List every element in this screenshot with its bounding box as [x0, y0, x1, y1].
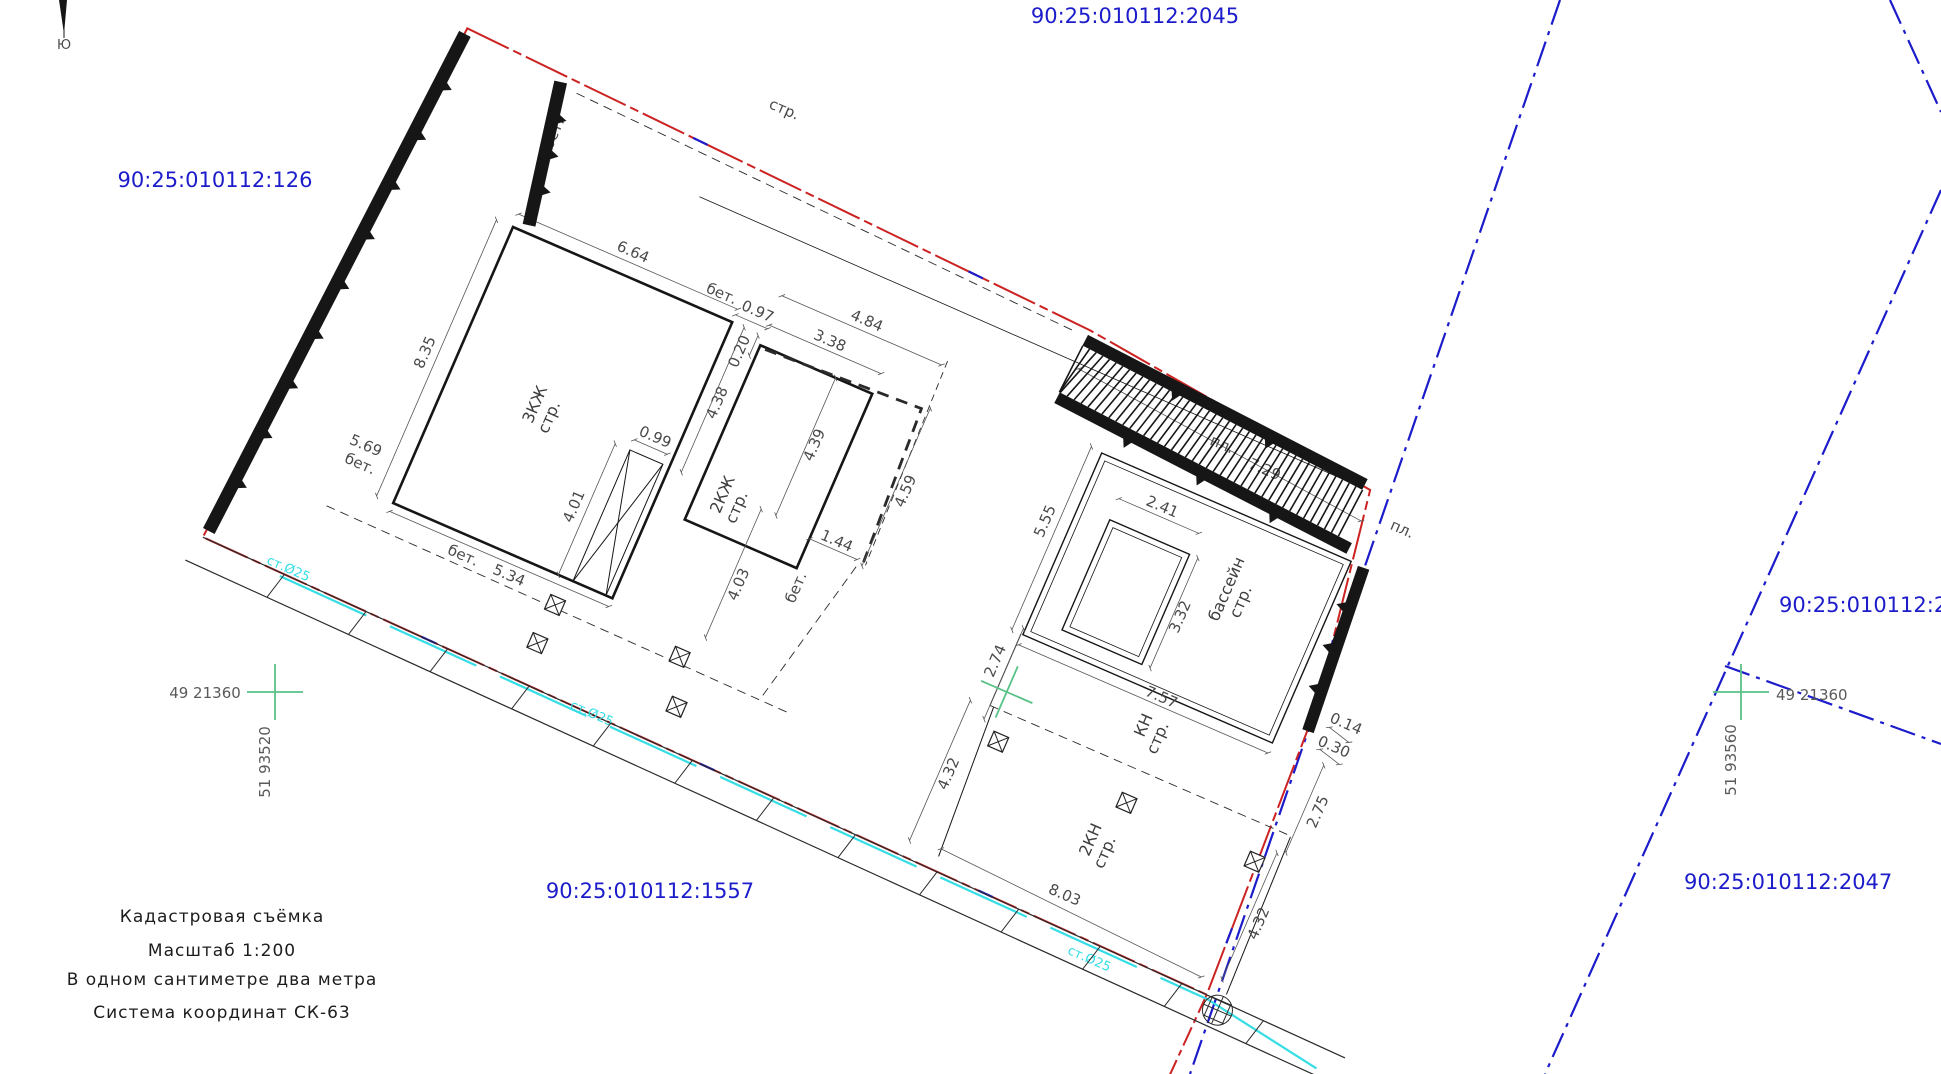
north-arrow: Ю — [57, 0, 71, 53]
road-tick — [1164, 981, 1182, 1009]
dim-5-55: 5.55 — [1030, 502, 1060, 540]
north-arrow-needle — [59, 0, 67, 34]
concrete-edge-dashed-top — [569, 93, 1081, 330]
left-cross-y-label: 51 93520 — [256, 726, 274, 798]
left-cross-x-label: 49 21360 — [169, 684, 241, 702]
stair-hatch-line — [1165, 399, 1197, 451]
stair-hatch-line — [1116, 374, 1150, 427]
parcel-number-right: 90:25:010112:204 — [1779, 593, 1941, 617]
stair-hatch-line — [1151, 392, 1183, 444]
road-tick — [675, 758, 693, 786]
stair-hatch-line — [1095, 364, 1130, 417]
north-label: Ю — [57, 38, 71, 53]
right-cross-y-label: 51 93560 — [1722, 724, 1740, 796]
title-block: Кадастровая съёмка Масштаб 1:200 В одном… — [67, 907, 378, 1023]
dim-5-34: 5.34 — [490, 560, 528, 590]
boundary-line-b — [1545, 190, 1941, 1074]
dim-3-32: 3.32 — [1165, 598, 1195, 636]
road-tick — [1001, 906, 1019, 934]
building-3kzh-outline — [393, 227, 732, 598]
neighbour-boundary-lines — [1190, 0, 1941, 1074]
dim-4-32-left: 4.32 — [934, 755, 964, 793]
cadastral-survey-drawing: Ю 90:25:010112:2045 90:25:010112:126 90:… — [0, 0, 1941, 1074]
wall-band-2 — [503, 82, 586, 225]
dim-2-75: 2.75 — [1303, 793, 1333, 831]
wall-band-5 — [1295, 568, 1376, 731]
boundary-line-corner — [1890, 0, 1941, 112]
pipe-label-2: ст.Ø25 — [568, 698, 616, 730]
parcel-boundary-extension — [1168, 994, 1206, 1074]
title-line-1: Кадастровая съёмка — [120, 907, 325, 927]
fence-line-top — [698, 197, 1346, 480]
right-cross-x-label: 49 21360 — [1776, 686, 1848, 704]
water-pipe-line — [272, 576, 1215, 1000]
structure-label-top: стр. — [766, 95, 802, 124]
dim-0-30: 0.30 — [1315, 732, 1353, 762]
dim-2-74: 2.74 — [980, 642, 1010, 680]
stair-hatch-line — [1158, 396, 1190, 448]
dim-8-35: 8.35 — [410, 333, 440, 371]
parcel-number-bottom: 90:25:010112:1557 — [546, 879, 754, 903]
stair-hatch-line — [1074, 353, 1109, 406]
site-plan: 6.64 8.35 4.38 0.99 4.01 5.34 5.69 0.97 … — [152, 0, 1606, 1074]
stair-hatch-line — [1102, 367, 1136, 420]
parcel-number-bottom-right: 90:25:010112:2047 — [1684, 870, 1892, 894]
parcel-number-top: 90:25:010112:2045 — [1031, 4, 1239, 28]
dim-8-03: 8.03 — [1046, 880, 1084, 910]
boundary-line-a — [1190, 0, 1560, 1074]
concrete-label-1: бет. — [445, 541, 482, 570]
dim-3-38: 3.38 — [811, 326, 849, 356]
dim-4-38: 4.38 — [702, 384, 732, 422]
dim-4-01: 4.01 — [559, 487, 589, 525]
road-bottom-edge — [176, 560, 1336, 1074]
dim-6-64: 6.64 — [614, 237, 652, 267]
water-pipe-line-end — [1200, 1000, 1324, 1069]
dim-0-97: 0.97 — [739, 296, 777, 326]
road-tick — [838, 832, 856, 860]
dim-0-99: 0.99 — [636, 422, 674, 452]
dim-4-32-right: 4.32 — [1244, 904, 1274, 942]
stair-hatch-line — [1185, 410, 1216, 462]
parcel-number-left: 90:25:010112:126 — [118, 168, 313, 192]
stair-hatch-line — [1130, 381, 1163, 434]
pool-tank-outline — [1062, 520, 1190, 665]
road-tick — [756, 795, 774, 823]
yard-walls — [922, 634, 1326, 995]
dim-0-20: 0.20 — [724, 332, 754, 370]
stair-hatch-line — [1123, 378, 1156, 431]
road-tick — [920, 869, 938, 897]
dim-4-03: 4.03 — [723, 565, 753, 603]
dim-0-14: 0.14 — [1327, 709, 1365, 739]
dim-4-84: 4.84 — [848, 306, 886, 336]
title-line-2: Масштаб 1:200 — [148, 941, 296, 961]
stair-hatch-line — [1137, 385, 1170, 437]
stair-hatch-line — [1144, 389, 1176, 441]
dim-2-41: 2.41 — [1143, 492, 1181, 522]
dim-4-39: 4.39 — [799, 426, 829, 464]
stairs-box — [573, 450, 663, 596]
boundary-line-branch — [1725, 666, 1941, 744]
title-line-4: Система координат СК-63 — [93, 1003, 350, 1023]
concrete-label-5: бет. — [781, 569, 810, 606]
building-pool-outline — [1023, 453, 1351, 743]
concrete-label-4: бет. — [703, 279, 740, 308]
wall-band-3 — [1077, 340, 1373, 484]
dim-7-57: 7.57 — [1143, 682, 1181, 712]
platform-label-2: пл. — [1388, 516, 1417, 542]
dim-1-44: 1.44 — [818, 526, 856, 556]
title-line-3: В одном сантиметре два метра — [67, 970, 378, 990]
